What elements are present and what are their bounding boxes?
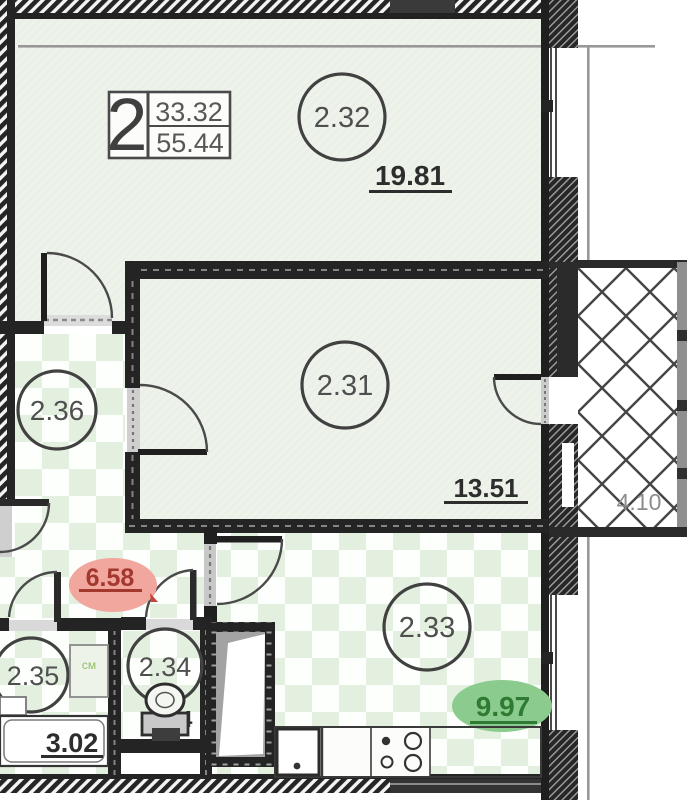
svg-text:см: см xyxy=(82,658,96,672)
svg-text:4.10: 4.10 xyxy=(617,489,662,515)
svg-text:6.58: 6.58 xyxy=(86,564,135,592)
svg-text:2.35: 2.35 xyxy=(7,661,60,691)
svg-text:2: 2 xyxy=(106,83,147,166)
svg-text:9.97: 9.97 xyxy=(476,691,531,722)
svg-text:13.51: 13.51 xyxy=(453,473,518,503)
svg-text:33.32: 33.32 xyxy=(155,97,223,127)
svg-text:2.33: 2.33 xyxy=(399,612,455,644)
svg-text:3.02: 3.02 xyxy=(46,728,99,758)
svg-text:2.31: 2.31 xyxy=(317,370,373,402)
svg-text:55.44: 55.44 xyxy=(156,128,224,158)
svg-text:19.81: 19.81 xyxy=(375,160,445,191)
svg-text:2.36: 2.36 xyxy=(30,395,85,426)
svg-text:2.32: 2.32 xyxy=(314,102,370,134)
svg-text:2.34: 2.34 xyxy=(139,652,192,682)
